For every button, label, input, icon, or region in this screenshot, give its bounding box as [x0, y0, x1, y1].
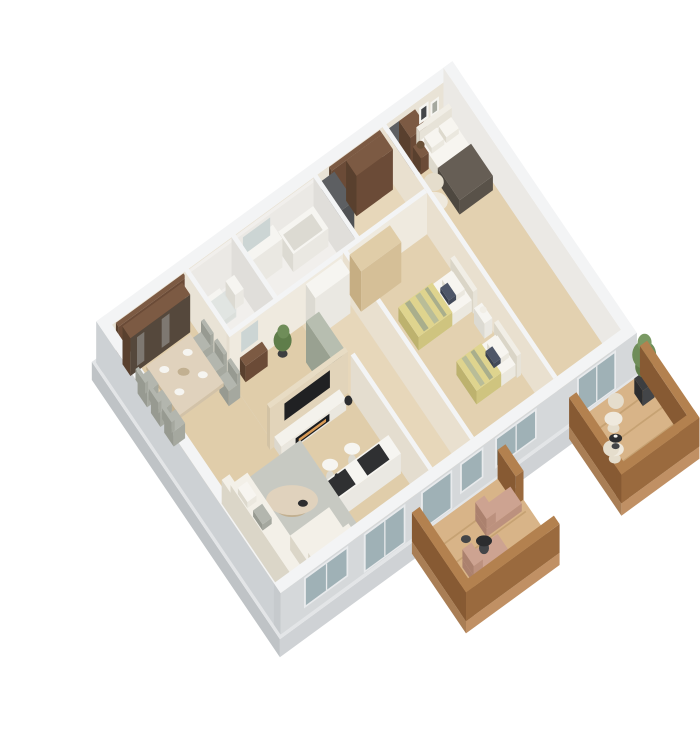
dining-plate-4: [198, 371, 208, 378]
dining-chair-6-back-front: [237, 372, 240, 385]
dining-chair-3-back-front: [172, 420, 175, 433]
dining-plate-1: [159, 366, 169, 373]
balcony-1-table: [476, 535, 492, 546]
floor-plan-svg: [40, 16, 700, 716]
dining-chair-1-back-front: [145, 381, 148, 394]
tv-wall-side: [267, 404, 270, 450]
kids-bed-2-headboard-front: [517, 353, 521, 378]
kitchen-faucet: [335, 473, 339, 479]
floor-plan-3d-render: [40, 16, 700, 716]
dining-chair-5-back-front: [224, 352, 227, 365]
balcony-1-side-table: [461, 535, 471, 543]
balcony-2-table-stem: [612, 443, 620, 449]
dining-plate-2: [174, 388, 184, 395]
coffee-table: [266, 485, 318, 515]
door-master-balcony-mullion: [596, 366, 597, 402]
dining-plate-3: [183, 349, 193, 356]
display-cabinet-glass-2: [162, 313, 170, 348]
master-lamp: [417, 141, 425, 149]
kitchen-stool-2: [344, 443, 360, 455]
window-kids-mullion: [516, 425, 517, 452]
coffee-table-decor: [298, 500, 308, 507]
kids-lamp: [480, 306, 487, 313]
balcony-2-chair-1: [605, 412, 623, 426]
dining-chair-2-back-front: [158, 400, 161, 413]
balcony-2-cup: [614, 435, 618, 438]
window-living-mullion: [326, 563, 327, 590]
dining-chair-4-back-front: [211, 333, 214, 346]
hall-plant-top: [277, 325, 289, 339]
dining-centerpiece: [178, 368, 190, 376]
display-cabinet-glass-1: [137, 332, 144, 366]
kitchen-stool-1: [322, 459, 338, 471]
balcony-2-chair-1-back: [608, 393, 624, 409]
door-living-balcony-mullion: [384, 521, 385, 557]
